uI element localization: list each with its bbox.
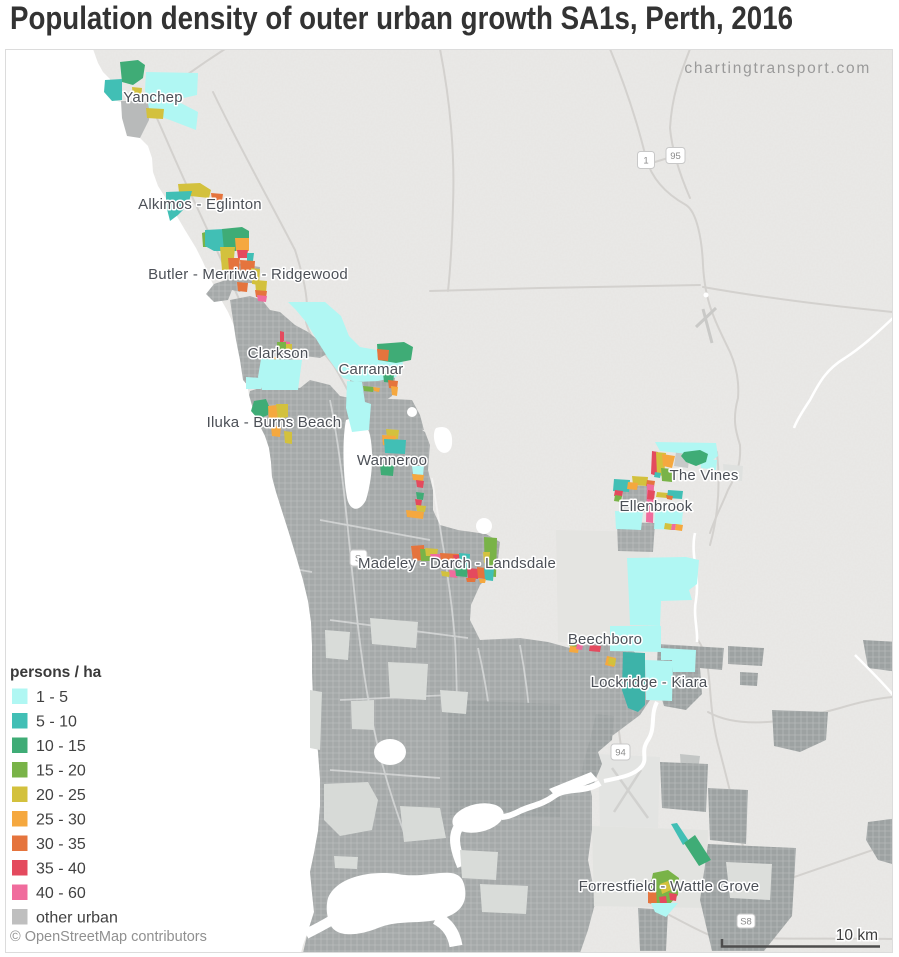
svg-text:S8: S8 (740, 917, 752, 928)
svg-text:5 - 10: 5 - 10 (36, 714, 77, 731)
svg-text:persons / ha: persons / ha (10, 664, 102, 681)
svg-text:Clarkson: Clarkson (248, 345, 309, 362)
svg-text:Beechboro: Beechboro (568, 631, 642, 648)
svg-text:© OpenStreetMap contributors: © OpenStreetMap contributors (10, 929, 207, 945)
svg-text:15 - 20: 15 - 20 (36, 763, 86, 780)
svg-text:10 - 15: 10 - 15 (36, 738, 86, 755)
svg-text:Madeley - Darch - Landsdale: Madeley - Darch - Landsdale (358, 555, 556, 572)
svg-text:Population density of outer ur: Population density of outer urban growth… (10, 0, 793, 36)
svg-text:Butler - Merriwa - Ridgewood: Butler - Merriwa - Ridgewood (148, 266, 348, 283)
svg-text:40 - 60: 40 - 60 (36, 885, 86, 902)
svg-text:1: 1 (643, 156, 648, 167)
svg-text:35 - 40: 35 - 40 (36, 861, 86, 878)
svg-text:Forrestfield - Wattle Grove: Forrestfield - Wattle Grove (579, 878, 760, 895)
svg-text:The Vines: The Vines (669, 467, 738, 484)
svg-text:30 - 35: 30 - 35 (36, 836, 86, 853)
svg-text:Iluka - Burns Beach: Iluka - Burns Beach (207, 414, 342, 431)
svg-text:25 - 30: 25 - 30 (36, 812, 86, 829)
svg-text:Ellenbrook: Ellenbrook (620, 498, 693, 515)
svg-text:chartingtransport.com: chartingtransport.com (684, 60, 871, 77)
svg-text:Wanneroo: Wanneroo (357, 452, 427, 469)
svg-text:Yanchep: Yanchep (123, 89, 183, 106)
svg-text:Lockridge - Kiara: Lockridge - Kiara (591, 674, 708, 691)
svg-text:Alkimos - Eglinton: Alkimos - Eglinton (138, 196, 262, 213)
svg-text:95: 95 (670, 151, 681, 162)
svg-text:other urban: other urban (36, 910, 118, 927)
svg-text:20 - 25: 20 - 25 (36, 787, 86, 804)
svg-text:Carramar: Carramar (339, 361, 404, 378)
svg-text:1 - 5: 1 - 5 (36, 689, 68, 706)
svg-text:94: 94 (615, 748, 626, 759)
svg-text:10 km: 10 km (836, 927, 878, 944)
